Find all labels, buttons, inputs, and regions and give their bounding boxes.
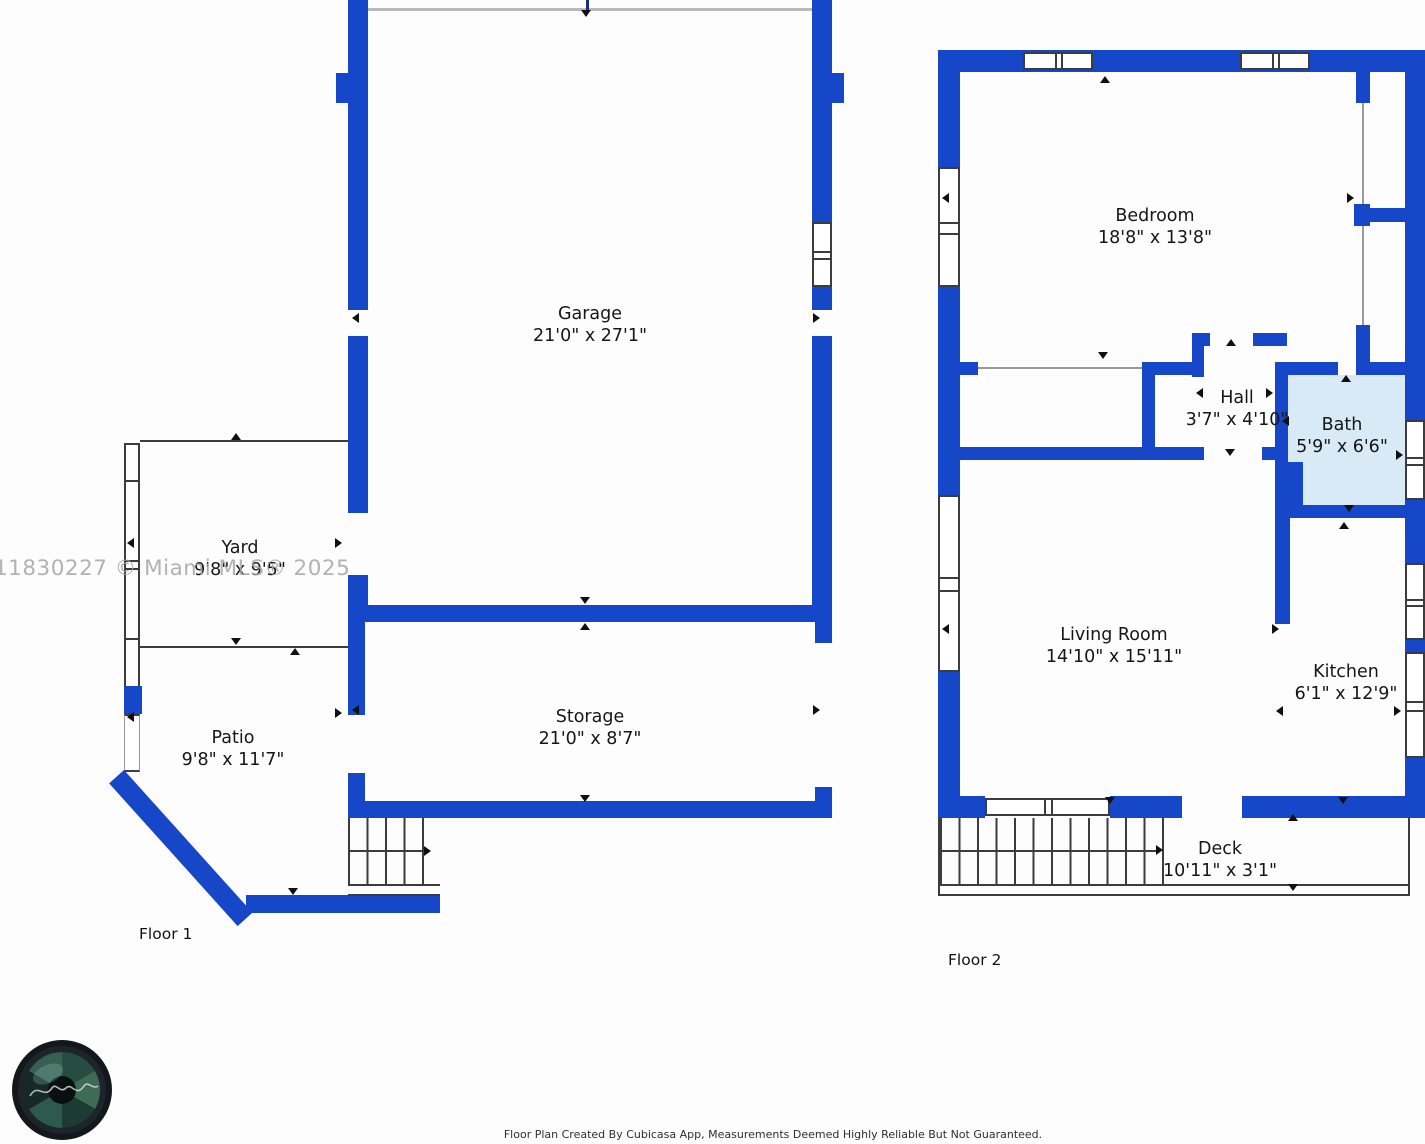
- room-dims: 10'11" x 3'1": [1163, 860, 1277, 882]
- dimension-arrow: [942, 624, 949, 634]
- room-dims: 21'0" x 8'7": [539, 728, 642, 750]
- dimension-arrow: [1288, 884, 1298, 891]
- room-label-hall: Hall 3'7" x 4'10": [1186, 387, 1289, 431]
- wall-segment: [348, 336, 368, 513]
- dimension-arrow: [335, 708, 342, 718]
- room-name: Kitchen: [1295, 661, 1398, 683]
- window-mullion: [1406, 710, 1424, 712]
- dimension-arrow: [1098, 352, 1108, 359]
- floor-plan-canvas: Garage 21'0" x 27'1" Yard 9'8" x 9'5" Pa…: [0, 0, 1425, 1144]
- wall-segment: [1275, 462, 1303, 518]
- wall-segment: [938, 287, 960, 495]
- window-mullion: [1278, 53, 1280, 69]
- dimension-arrow: [1338, 797, 1348, 804]
- dimension-arrow: [127, 538, 134, 548]
- room-label-kitchen: Kitchen 6'1" x 12'9": [1295, 661, 1398, 705]
- stairs-direction-arrow: [1156, 845, 1163, 855]
- dimension-arrow: [1339, 522, 1349, 529]
- dimension-arrow: [1394, 706, 1401, 716]
- wall-segment: [812, 336, 832, 622]
- stairs-direction-arrow: [424, 846, 431, 856]
- dimension-arrow: [1276, 706, 1283, 716]
- wall-segment: [938, 796, 985, 818]
- railing-bar: [125, 480, 139, 482]
- stairs-midline: [940, 850, 1158, 852]
- wall-segment: [815, 787, 832, 801]
- dimension-arrow: [288, 888, 298, 895]
- window: [1240, 52, 1310, 70]
- floor1-label: Floor 1: [139, 925, 192, 943]
- room-name: Bath: [1296, 414, 1388, 436]
- window-mullion: [1051, 799, 1053, 815]
- room-label-garage: Garage 21'0" x 27'1": [533, 303, 647, 347]
- window: [985, 798, 1110, 816]
- window: [1405, 420, 1425, 500]
- dimension-arrow: [1226, 339, 1236, 346]
- mls-watermark: 11830227 © Miami MLS® 2025: [0, 556, 350, 581]
- dimension-arrow: [1396, 450, 1403, 460]
- deck-edge: [938, 884, 1410, 886]
- window-mullion: [1055, 53, 1057, 69]
- dimension-arrow: [580, 795, 590, 802]
- stairs-edge: [348, 894, 440, 896]
- room-dims: 5'9" x 6'6": [1296, 436, 1388, 458]
- window-mullion: [1406, 701, 1424, 703]
- railing-bar: [125, 638, 139, 640]
- room-label-storage: Storage 21'0" x 8'7": [539, 706, 642, 750]
- room-dims: 14'10" x 15'11": [1046, 646, 1182, 668]
- room-label-living-room: Living Room 14'10" x 15'11": [1046, 624, 1182, 668]
- window-mullion: [939, 222, 959, 224]
- wall-segment: [1242, 796, 1425, 818]
- room-name: Garage: [533, 303, 647, 325]
- window: [938, 167, 960, 287]
- diagonal-wall: [109, 770, 252, 926]
- window: [1405, 652, 1425, 758]
- photographer-logo: [10, 1038, 114, 1142]
- wall-segment: [348, 605, 832, 622]
- room-dims: 18'8" x 13'8": [1098, 227, 1212, 249]
- window-mullion: [939, 590, 959, 592]
- window-mullion: [1272, 53, 1274, 69]
- window: [938, 495, 960, 672]
- wall-segment: [1364, 208, 1405, 222]
- camera-lens-icon: [10, 1038, 114, 1142]
- room-dims: 21'0" x 27'1": [533, 325, 647, 347]
- room-name: Deck: [1163, 838, 1277, 860]
- room-name: Patio: [182, 727, 285, 749]
- window-mullion: [1061, 53, 1063, 69]
- dimension-arrow: [127, 712, 134, 722]
- wall-segment: [1110, 796, 1182, 818]
- wall-segment: [1356, 72, 1370, 103]
- dimension-arrow: [335, 538, 342, 548]
- wall-segment: [1362, 362, 1405, 375]
- stairs-edge: [348, 884, 440, 886]
- wall-segment: [938, 50, 960, 167]
- wall-segment: [348, 801, 832, 818]
- room-dims: 6'1" x 12'9": [1295, 683, 1398, 705]
- wall-segment: [1275, 518, 1290, 624]
- footer-disclaimer: Floor Plan Created By Cubicasa App, Meas…: [504, 1128, 1042, 1141]
- dimension-arrow: [352, 313, 359, 323]
- dimension-arrow: [942, 193, 949, 203]
- wall-segment: [246, 895, 440, 913]
- window: [812, 222, 832, 287]
- wall-segment: [938, 362, 978, 375]
- wall-segment: [812, 0, 832, 222]
- window-mullion: [813, 258, 831, 260]
- wall-segment: [348, 0, 368, 310]
- dimension-arrow: [1347, 193, 1354, 203]
- room-label-deck: Deck 10'11" x 3'1": [1163, 838, 1277, 882]
- deck-edge: [938, 894, 1410, 896]
- window-mullion: [1406, 605, 1424, 607]
- door-opening: [124, 714, 140, 772]
- room-name: Bedroom: [1098, 205, 1212, 227]
- room-dims: 3'7" x 4'10": [1186, 409, 1289, 431]
- dimension-arrow: [1272, 624, 1279, 634]
- yard-boundary: [140, 440, 348, 442]
- room-label-bedroom: Bedroom 18'8" x 13'8": [1098, 205, 1212, 249]
- window-mullion: [939, 233, 959, 235]
- sliding-door-line: [978, 367, 1142, 369]
- wall-segment: [1354, 204, 1370, 226]
- wall-notch: [336, 73, 350, 103]
- floor2-label: Floor 2: [948, 951, 1001, 969]
- room-name: Living Room: [1046, 624, 1182, 646]
- room-dims: 9'8" x 11'7": [182, 749, 285, 771]
- dimension-arrow: [581, 10, 591, 17]
- dimension-arrow: [580, 597, 590, 604]
- room-name: Storage: [539, 706, 642, 728]
- room-label-patio: Patio 9'8" x 11'7": [182, 727, 285, 771]
- dimension-arrow: [813, 705, 820, 715]
- dimension-arrow: [1341, 375, 1351, 382]
- dimension-arrow: [231, 433, 241, 440]
- wall-segment: [1405, 640, 1425, 652]
- window-mullion: [813, 251, 831, 253]
- wall-notch: [830, 73, 844, 103]
- dimension-arrow: [580, 623, 590, 630]
- wall-segment: [1262, 447, 1288, 460]
- wall-segment: [815, 622, 832, 643]
- wall-segment: [938, 50, 1425, 72]
- dimension-arrow: [1344, 505, 1354, 512]
- yard-boundary: [135, 646, 348, 648]
- garage-door-tick: [586, 0, 589, 10]
- window-mullion: [1406, 599, 1424, 601]
- window-mullion: [1044, 799, 1046, 815]
- wall-segment: [348, 622, 365, 715]
- window-mullion: [1406, 464, 1424, 466]
- dimension-arrow: [290, 648, 300, 655]
- dimension-arrow: [1288, 814, 1298, 821]
- wall-segment: [812, 287, 832, 310]
- window-mullion: [1406, 457, 1424, 459]
- window: [1023, 52, 1093, 70]
- dimension-arrow: [1100, 76, 1110, 83]
- room-label-bath: Bath 5'9" x 6'6": [1296, 414, 1388, 458]
- wall-segment: [348, 773, 365, 801]
- dimension-arrow: [1225, 449, 1235, 456]
- window: [1405, 563, 1425, 640]
- dimension-arrow: [352, 705, 359, 715]
- dimension-arrow: [231, 638, 241, 645]
- wall-segment: [1405, 50, 1425, 420]
- window-mullion: [939, 577, 959, 579]
- stairs-midline: [348, 850, 426, 852]
- dimension-arrow: [1105, 797, 1115, 804]
- wall-segment: [1253, 333, 1287, 346]
- room-name: Hall: [1186, 387, 1289, 409]
- wall-segment: [938, 447, 1204, 460]
- dimension-arrow: [813, 313, 820, 323]
- wall-segment: [1192, 333, 1204, 377]
- wall-segment: [124, 686, 142, 714]
